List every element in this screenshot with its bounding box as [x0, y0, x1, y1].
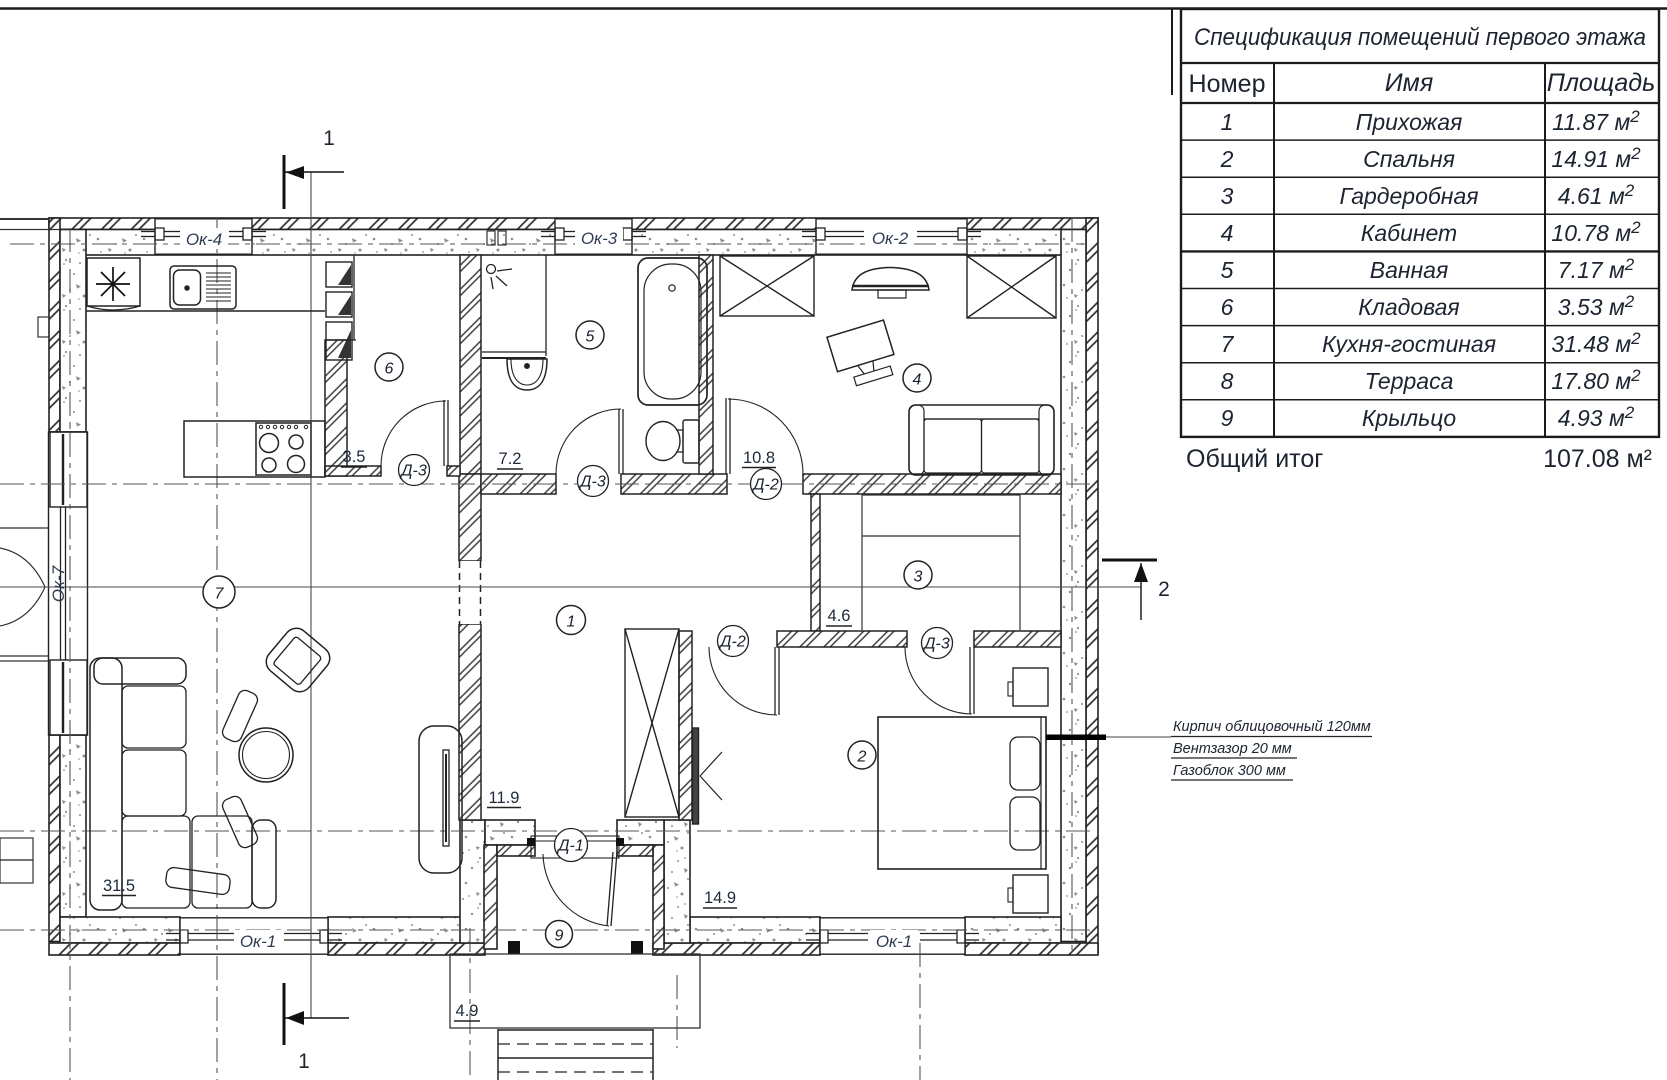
svg-text:107.08 м²: 107.08 м² [1543, 445, 1652, 473]
svg-text:Имя: Имя [1385, 69, 1433, 97]
svg-text:11.9: 11.9 [489, 789, 520, 807]
svg-text:31.48 м2: 31.48 м2 [1551, 329, 1641, 357]
svg-text:3: 3 [914, 569, 923, 586]
svg-text:7: 7 [1221, 331, 1235, 357]
svg-text:4.6: 4.6 [828, 607, 851, 625]
svg-text:3: 3 [1221, 183, 1234, 209]
svg-text:5: 5 [586, 329, 595, 346]
svg-text:Ок-1: Ок-1 [240, 932, 276, 951]
svg-text:2: 2 [857, 749, 867, 766]
svg-text:Ок-7: Ок-7 [49, 565, 68, 602]
svg-text:10.78 м2: 10.78 м2 [1551, 218, 1641, 246]
svg-text:14.91 м2: 14.91 м2 [1551, 144, 1641, 172]
svg-text:1: 1 [567, 614, 576, 631]
svg-text:1: 1 [1221, 109, 1234, 135]
svg-text:6: 6 [385, 361, 394, 378]
svg-text:31.5: 31.5 [103, 877, 135, 895]
svg-text:Д-3: Д-3 [399, 463, 427, 480]
svg-text:8: 8 [1221, 368, 1234, 394]
svg-text:Номер: Номер [1189, 70, 1266, 98]
svg-text:Ванная: Ванная [1370, 257, 1449, 283]
svg-text:7: 7 [215, 586, 225, 603]
svg-text:Д-2: Д-2 [718, 634, 746, 651]
svg-text:Кирпич облицовочный 120мм: Кирпич облицовочный 120мм [1173, 719, 1371, 735]
svg-text:Терраса: Терраса [1365, 368, 1454, 394]
svg-text:Спальня: Спальня [1363, 146, 1455, 172]
svg-text:Д-3: Д-3 [922, 636, 950, 653]
svg-text:Ок-4: Ок-4 [186, 230, 222, 249]
svg-text:Общий итог: Общий итог [1186, 445, 1323, 473]
svg-text:Д-1: Д-1 [556, 838, 584, 855]
svg-text:2: 2 [1220, 146, 1234, 172]
svg-text:3.53 м2: 3.53 м2 [1558, 292, 1635, 320]
svg-text:Гардеробная: Гардеробная [1339, 183, 1478, 209]
svg-text:3.5: 3.5 [343, 448, 366, 466]
svg-text:1: 1 [323, 127, 335, 150]
svg-text:14.9: 14.9 [704, 889, 736, 907]
svg-text:Площадь: Площадь [1547, 69, 1656, 97]
svg-text:9: 9 [1221, 405, 1234, 431]
svg-text:Спецификация помещений первого: Спецификация помещений первого этажа [1194, 24, 1646, 51]
svg-text:4: 4 [913, 372, 922, 389]
svg-text:Кладовая: Кладовая [1358, 294, 1459, 320]
svg-text:Ок-1: Ок-1 [876, 932, 912, 951]
svg-text:4.9: 4.9 [456, 1002, 479, 1020]
svg-text:7.17 м2: 7.17 м2 [1558, 255, 1635, 283]
svg-text:5: 5 [1221, 257, 1234, 283]
svg-text:6: 6 [1221, 294, 1234, 320]
svg-text:Кухня-гостиная: Кухня-гостиная [1322, 331, 1496, 357]
svg-text:2: 2 [1158, 578, 1170, 601]
svg-text:Газоблок 300 мм: Газоблок 300 мм [1173, 763, 1286, 779]
svg-text:7.2: 7.2 [499, 450, 522, 468]
svg-text:Кабинет: Кабинет [1361, 220, 1457, 246]
svg-text:1: 1 [298, 1050, 310, 1073]
svg-text:11.87 м2: 11.87 м2 [1552, 107, 1640, 135]
svg-text:Ок-2: Ок-2 [872, 229, 909, 248]
svg-text:4.93 м2: 4.93 м2 [1558, 403, 1635, 431]
svg-text:Д-2: Д-2 [751, 477, 779, 494]
svg-text:10.8: 10.8 [743, 449, 775, 467]
svg-text:Вентзазор 20 мм: Вентзазор 20 мм [1173, 741, 1292, 757]
svg-text:Д-3: Д-3 [578, 474, 606, 491]
svg-text:17.80 м2: 17.80 м2 [1551, 366, 1641, 394]
svg-text:4.61 м2: 4.61 м2 [1558, 181, 1635, 209]
svg-text:Ок-3: Ок-3 [581, 229, 618, 248]
svg-text:Прихожая: Прихожая [1356, 109, 1463, 135]
svg-text:9: 9 [555, 928, 564, 945]
svg-text:4: 4 [1221, 220, 1234, 246]
svg-text:Крыльцо: Крыльцо [1362, 405, 1456, 431]
